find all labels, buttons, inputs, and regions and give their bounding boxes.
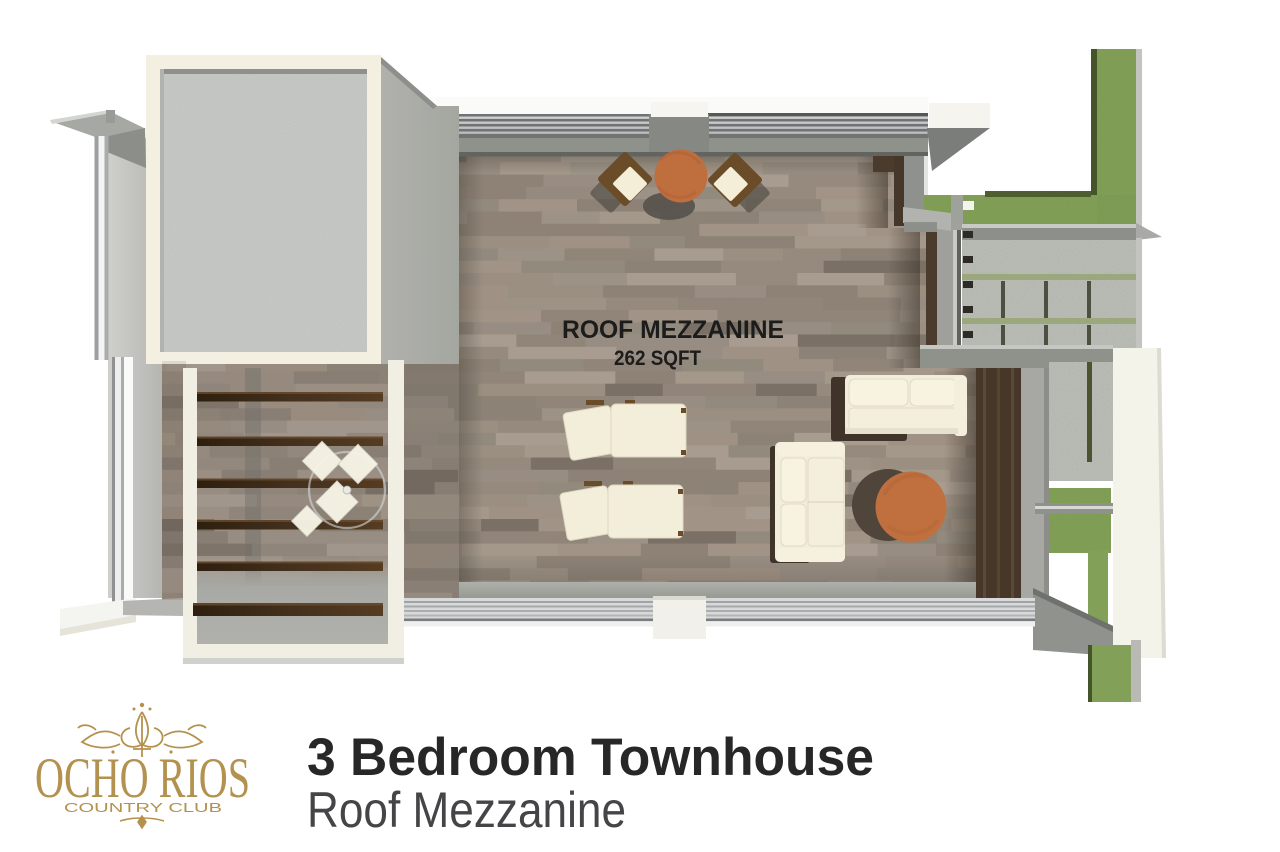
svg-text:262 SQFT: 262 SQFT	[614, 347, 701, 370]
svg-text:Roof Mezzanine: Roof Mezzanine	[307, 782, 626, 838]
svg-text:ROOF MEZZANINE: ROOF MEZZANINE	[562, 316, 784, 344]
svg-text:3 Bedroom Townhouse: 3 Bedroom Townhouse	[307, 728, 874, 787]
svg-text:COUNTRY CLUB: COUNTRY CLUB	[64, 801, 222, 815]
